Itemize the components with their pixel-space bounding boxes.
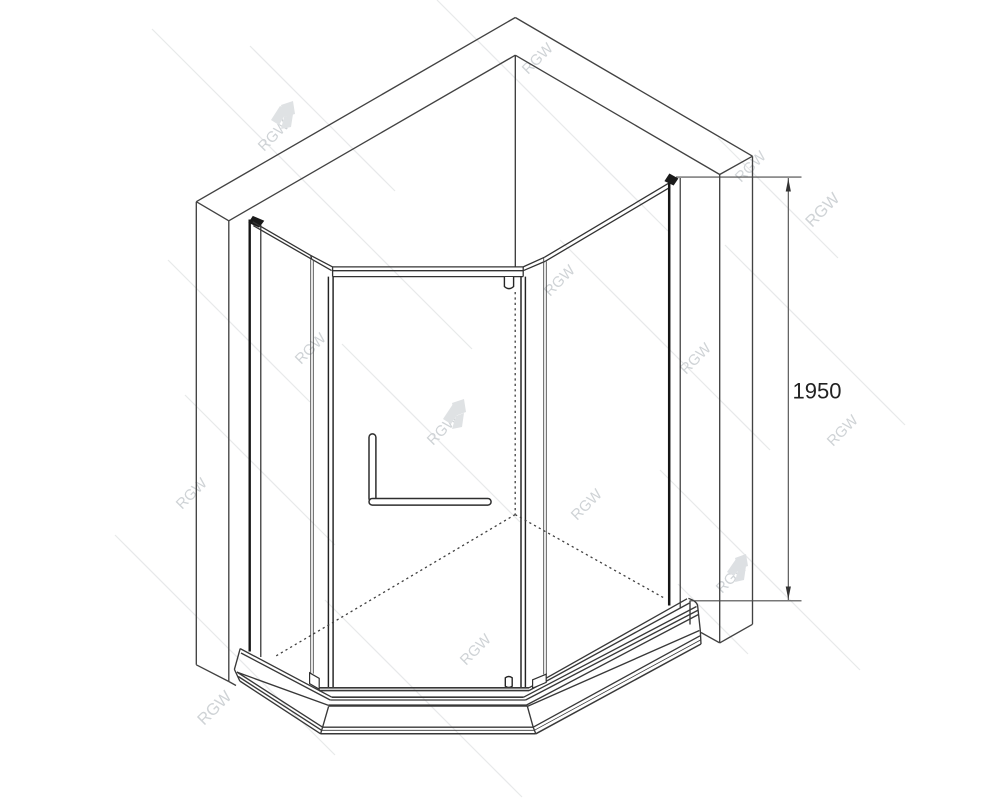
svg-text:RGW: RGW — [732, 147, 771, 186]
svg-text:RGW: RGW — [194, 687, 236, 729]
svg-text:RGW: RGW — [568, 485, 607, 524]
svg-text:RGW: RGW — [677, 339, 716, 378]
svg-text:RGW: RGW — [519, 39, 558, 78]
svg-text:RGW: RGW — [457, 630, 496, 669]
svg-text:RGW: RGW — [824, 411, 863, 450]
svg-text:RGW: RGW — [173, 474, 212, 513]
svg-text:1950: 1950 — [793, 379, 842, 404]
svg-text:RGW: RGW — [802, 189, 844, 231]
